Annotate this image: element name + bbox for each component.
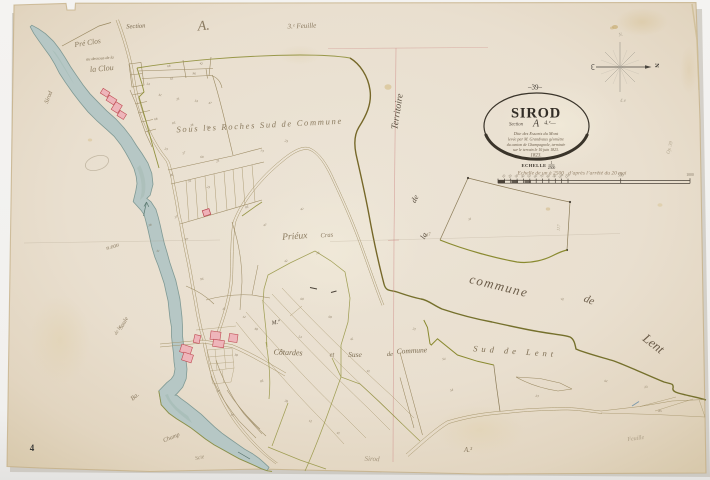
svg-text:85: 85 xyxy=(658,409,662,413)
svg-text:de: de xyxy=(387,351,393,358)
svg-text:47: 47 xyxy=(208,101,212,105)
svg-text:Côtardes: Côtardes xyxy=(273,347,302,357)
svg-text:A.³: A.³ xyxy=(463,446,473,454)
svg-text:1823.: 1823. xyxy=(530,154,541,159)
svg-text:ECHELLE: ECHELLE xyxy=(521,163,546,168)
svg-text:68: 68 xyxy=(200,155,204,159)
svg-text:500: 500 xyxy=(618,174,624,178)
svg-text:N.: N. xyxy=(617,33,623,39)
svg-text:sur le terrain le 10 juin 1823: sur le terrain le 10 juin 1823. xyxy=(513,148,559,152)
svg-text:2500: 2500 xyxy=(548,166,556,170)
svg-text:Priéux: Priéux xyxy=(281,231,309,243)
svg-text:1000: 1000 xyxy=(686,173,694,177)
svg-text:1: 1 xyxy=(551,161,553,165)
svg-text:Suse: Suse xyxy=(348,350,362,359)
svg-text:4.e: 4.e xyxy=(620,99,627,104)
svg-text:levée par M. Grandvaux géomètr: levée par M. Grandvaux géomètre xyxy=(508,137,564,142)
svg-text:Section: Section xyxy=(509,123,524,128)
svg-text:N: N xyxy=(653,63,660,68)
svg-text:A: A xyxy=(532,119,540,130)
svg-text:Commune: Commune xyxy=(396,345,428,356)
svg-text:12: 12 xyxy=(242,315,246,319)
svg-text:4: 4 xyxy=(30,443,35,453)
svg-text:et: et xyxy=(330,352,335,359)
svg-text:A.: A. xyxy=(196,19,210,35)
svg-text:3.ᵉ Feuille: 3.ᵉ Feuille xyxy=(286,22,316,31)
svg-text:Cras: Cras xyxy=(320,232,334,240)
svg-text:31: 31 xyxy=(156,249,160,253)
svg-text:Sirod: Sirod xyxy=(364,455,380,464)
svg-text:Section: Section xyxy=(126,23,145,31)
svg-text:4.ᵉ—: 4.ᵉ— xyxy=(544,120,556,127)
svg-text:–39–: –39– xyxy=(527,84,543,92)
svg-text:Dite des Essarts du Mont: Dite des Essarts du Mont xyxy=(513,131,559,136)
